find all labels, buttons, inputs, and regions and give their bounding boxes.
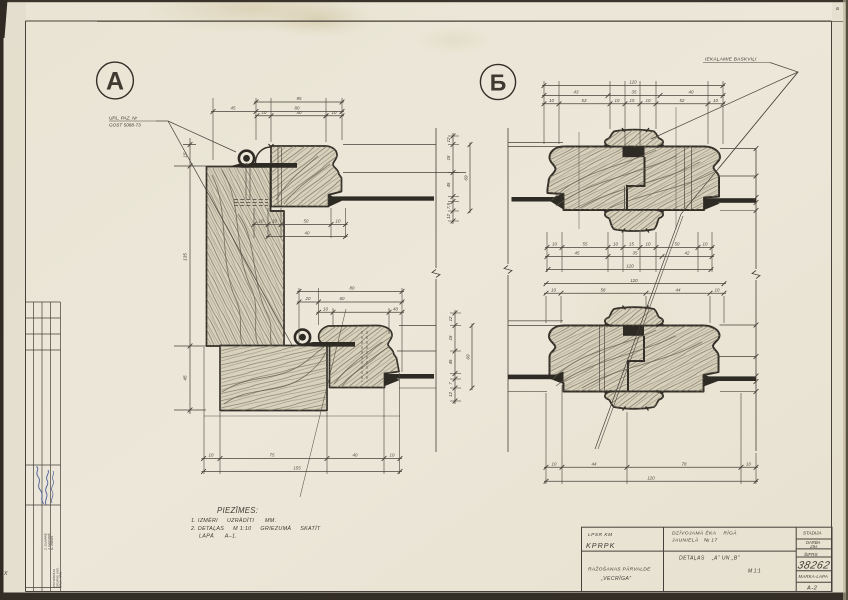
svg-text:A: A xyxy=(106,68,124,96)
svg-text:50: 50 xyxy=(304,219,309,224)
svg-text:10: 10 xyxy=(746,462,751,467)
svg-text:IZSTRĀDĀJA: IZSTRĀDĀJA xyxy=(52,569,56,588)
svg-text:JAUNIELĀ № 17: JAUNIELĀ № 17 xyxy=(671,537,718,544)
svg-text:10: 10 xyxy=(646,98,651,103)
svg-text:MARKA-LAPA: MARKA-LAPA xyxy=(799,574,828,579)
svg-text:135: 135 xyxy=(183,253,188,261)
svg-text:12: 12 xyxy=(448,316,453,321)
svg-text:x: x xyxy=(3,570,8,577)
svg-text:12: 12 xyxy=(446,214,451,219)
svg-text:42: 42 xyxy=(685,251,690,256)
svg-text:10: 10 xyxy=(332,110,337,115)
svg-text:10: 10 xyxy=(552,242,557,247)
svg-text:45: 45 xyxy=(183,375,188,381)
svg-text:PIEZĪMES:: PIEZĪMES: xyxy=(217,506,258,515)
svg-text:18: 18 xyxy=(446,155,451,160)
svg-text:M 1:1: M 1:1 xyxy=(748,569,761,575)
svg-text:„VECRĪGA”: „VECRĪGA” xyxy=(600,575,631,582)
svg-text:45: 45 xyxy=(448,359,453,364)
svg-text:55: 55 xyxy=(583,242,588,247)
svg-text:10: 10 xyxy=(259,219,264,224)
svg-text:DETAĻAS „A” UN „B”: DETAĻAS „A” UN „B” xyxy=(679,556,740,562)
svg-text:ŠIFRS: ŠIFRS xyxy=(804,551,818,557)
svg-text:43: 43 xyxy=(574,90,579,95)
svg-text:1. IZMĒRI UZRĀDĪTI MM: 1. IZMĒRI UZRĀDĪTI MM. xyxy=(191,517,276,524)
svg-text:40: 40 xyxy=(305,231,310,236)
svg-text:IEKAĻAMIE BASKVIĻI: IEKAĻAMIE BASKVIĻI xyxy=(705,57,757,63)
svg-text:80: 80 xyxy=(350,286,355,291)
svg-text:58: 58 xyxy=(601,287,606,292)
svg-text:10: 10 xyxy=(615,98,620,103)
svg-text:78: 78 xyxy=(682,462,687,467)
svg-text:120: 120 xyxy=(630,278,638,283)
svg-text:UPL. PAZ. Nr: UPL. PAZ. Nr xyxy=(109,116,137,121)
svg-text:10: 10 xyxy=(552,462,557,467)
svg-text:10: 10 xyxy=(646,242,651,247)
svg-text:38262: 38262 xyxy=(796,560,831,572)
svg-text:120: 120 xyxy=(626,264,634,269)
svg-text:Z. GUNARE: Z. GUNARE xyxy=(44,532,48,551)
svg-text:10: 10 xyxy=(715,287,720,292)
svg-text:35: 35 xyxy=(633,251,638,256)
svg-text:10: 10 xyxy=(272,219,277,224)
svg-text:10: 10 xyxy=(262,110,267,115)
svg-text:40: 40 xyxy=(297,110,302,115)
svg-text:10: 10 xyxy=(551,287,556,292)
svg-text:GOST 5088-73: GOST 5088-73 xyxy=(109,123,141,128)
svg-text:50: 50 xyxy=(675,242,680,247)
svg-text:12: 12 xyxy=(446,137,451,142)
svg-text:45: 45 xyxy=(446,182,451,187)
svg-text:15: 15 xyxy=(630,98,635,103)
svg-text:ZĪM.: ZĪM. xyxy=(809,544,818,549)
svg-text:120: 120 xyxy=(629,80,637,85)
svg-text:2. DETAĻAS M 1:10 GRIE: 2. DETAĻAS M 1:10 GRIEZUMĀ SKATĪT xyxy=(190,525,321,532)
svg-text:a: a xyxy=(836,6,839,12)
svg-text:12: 12 xyxy=(448,392,453,397)
svg-text:LPSR KM: LPSR KM xyxy=(588,532,613,538)
svg-text:60: 60 xyxy=(340,296,345,301)
svg-text:45: 45 xyxy=(575,251,580,256)
svg-text:40: 40 xyxy=(393,307,398,312)
svg-text:52: 52 xyxy=(680,98,685,103)
svg-text:KPRPK: KPRPK xyxy=(586,541,616,550)
svg-text:155: 155 xyxy=(293,466,301,471)
svg-text:A-2: A-2 xyxy=(806,586,818,592)
svg-text:69: 69 xyxy=(466,354,471,360)
svg-text:75: 75 xyxy=(270,453,275,458)
svg-text:69: 69 xyxy=(464,175,469,181)
svg-text:7,5: 7,5 xyxy=(446,202,451,209)
svg-text:35: 35 xyxy=(632,90,637,95)
svg-text:44: 44 xyxy=(592,462,597,467)
svg-text:DZĪVOJAMĀ ĒKA RĪGĀ: DZĪVOJAMĀ ĒKA RĪGĀ xyxy=(672,530,737,537)
svg-text:120: 120 xyxy=(647,476,655,481)
svg-text:18: 18 xyxy=(448,335,453,340)
svg-text:10: 10 xyxy=(549,98,554,103)
svg-text:Б: Б xyxy=(490,70,507,96)
svg-text:LAPĀ A–1.: LAPĀ A–1. xyxy=(199,533,237,540)
svg-text:10: 10 xyxy=(336,219,341,224)
svg-text:10: 10 xyxy=(713,98,718,103)
svg-text:95: 95 xyxy=(297,96,302,101)
svg-text:40: 40 xyxy=(689,90,694,95)
svg-text:40: 40 xyxy=(353,453,358,458)
svg-text:53: 53 xyxy=(582,98,587,103)
svg-text:10: 10 xyxy=(613,242,618,247)
svg-text:STADIJA: STADIJA xyxy=(803,531,822,536)
svg-text:10: 10 xyxy=(209,453,214,458)
svg-text:10: 10 xyxy=(323,307,328,312)
svg-text:10: 10 xyxy=(390,453,395,458)
svg-text:10: 10 xyxy=(703,242,708,247)
svg-text:15: 15 xyxy=(629,242,634,247)
svg-text:20: 20 xyxy=(305,296,311,301)
svg-text:45: 45 xyxy=(231,106,236,111)
svg-text:44: 44 xyxy=(676,287,681,292)
